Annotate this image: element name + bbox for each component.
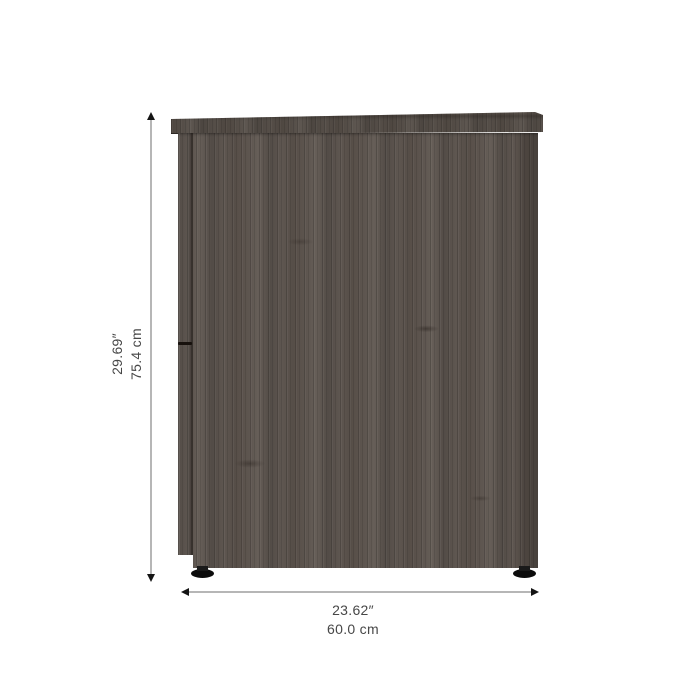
height-value-inches: 29.69″: [108, 294, 127, 414]
arrow-right-icon: [531, 588, 539, 596]
height-value-cm: 75.4 cm: [127, 294, 146, 414]
arrow-up-icon: [147, 112, 155, 120]
height-label: 29.69″ 75.4 cm: [108, 294, 148, 414]
cabinet-front-panel: [178, 133, 538, 568]
arrow-left-icon: [181, 588, 189, 596]
width-value-cm: 60.0 cm: [253, 620, 453, 639]
width-dimension-line: [186, 591, 534, 593]
cabinet-top-panel: [171, 111, 543, 135]
width-label: 23.62″ 60.0 cm: [253, 601, 453, 639]
width-value-inches: 23.62″: [253, 601, 453, 620]
product-dimension-diagram: 29.69″ 75.4 cm 23.62″ 60.0 cm: [0, 0, 700, 700]
panel-gap-mark: [178, 342, 192, 345]
arrow-down-icon: [147, 574, 155, 582]
height-dimension-line: [150, 120, 152, 575]
right-foot-glide: [513, 569, 536, 578]
left-foot-glide: [191, 569, 214, 578]
